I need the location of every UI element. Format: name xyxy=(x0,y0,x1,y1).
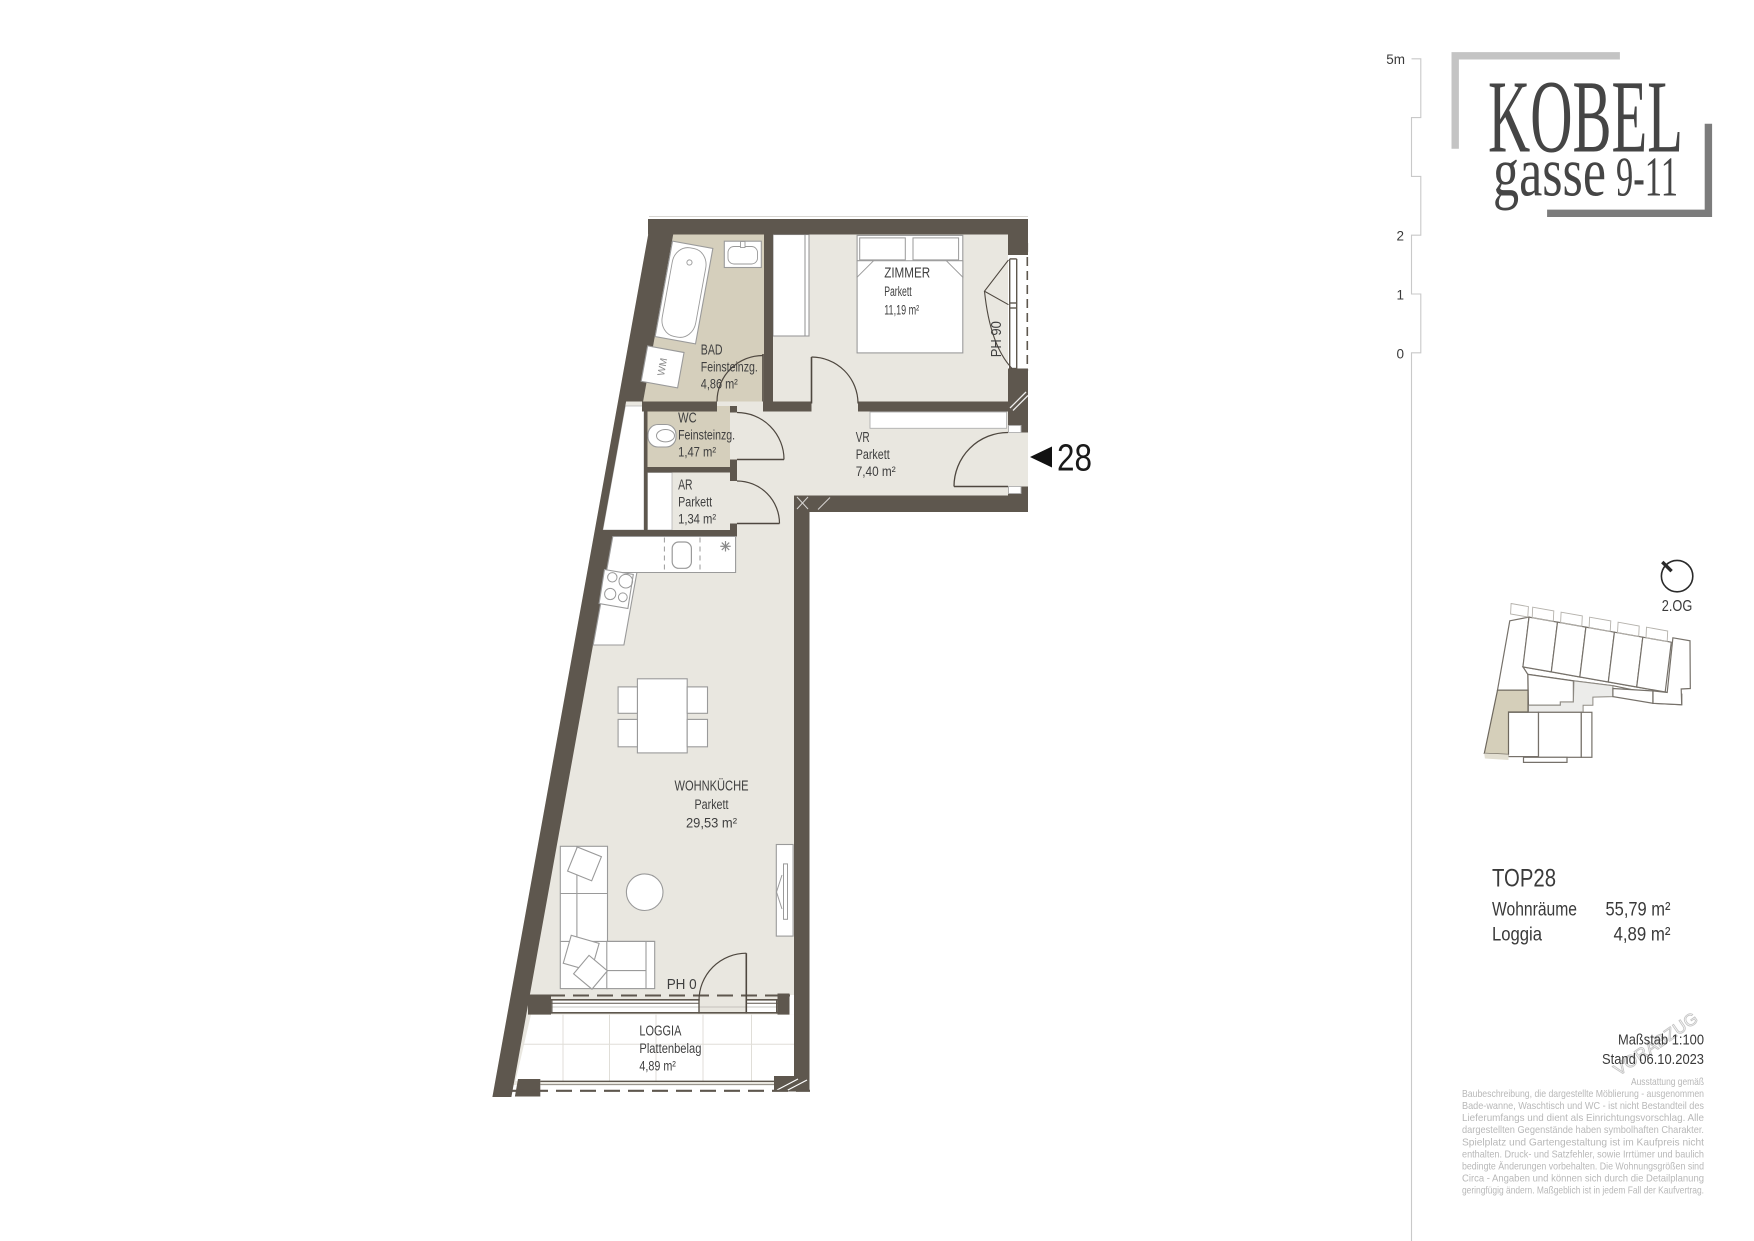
svg-text:Feinsteinzg.: Feinsteinzg. xyxy=(678,428,735,443)
svg-text:0: 0 xyxy=(1396,347,1404,362)
svg-text:Circa - Angaben und können sic: Circa - Angaben und können sich durch di… xyxy=(1462,1174,1704,1185)
svg-text:28: 28 xyxy=(1057,438,1092,480)
svg-text:PH 90: PH 90 xyxy=(988,321,1005,357)
svg-text:11,19 m²: 11,19 m² xyxy=(884,303,919,318)
svg-text:Plattenbelag: Plattenbelag xyxy=(639,1041,701,1056)
svg-text:dargestellten Gegenstände habe: dargestellten Gegenstände haben symbolha… xyxy=(1462,1125,1704,1136)
svg-text:7,40 m²: 7,40 m² xyxy=(856,464,896,479)
svg-text:55,79 m²: 55,79 m² xyxy=(1606,900,1671,921)
svg-text:PH 0: PH 0 xyxy=(667,976,697,993)
svg-text:WOHNKÜCHE: WOHNKÜCHE xyxy=(675,777,749,795)
svg-text:Stand 06.10.2023: Stand 06.10.2023 xyxy=(1602,1051,1704,1068)
svg-text:ZIMMER: ZIMMER xyxy=(884,265,930,282)
svg-text:Feinsteinzg.: Feinsteinzg. xyxy=(701,360,758,375)
svg-text:BAD: BAD xyxy=(701,342,723,359)
svg-text:TOP28: TOP28 xyxy=(1492,865,1556,893)
svg-text:5m: 5m xyxy=(1386,52,1405,67)
svg-text:4,89 m²: 4,89 m² xyxy=(639,1058,676,1073)
svg-text:4,89 m²: 4,89 m² xyxy=(1614,925,1671,946)
svg-text:VR: VR xyxy=(856,429,870,446)
svg-text:Ausstattung gemäß: Ausstattung gemäß xyxy=(1631,1077,1704,1088)
svg-text:Parkett: Parkett xyxy=(695,797,729,812)
svg-text:Loggia: Loggia xyxy=(1492,925,1542,946)
svg-text:Bade-wanne, Waschtisch und WC: Bade-wanne, Waschtisch und WC - ist nich… xyxy=(1462,1101,1704,1112)
svg-text:1: 1 xyxy=(1396,288,1404,303)
svg-text:Parkett: Parkett xyxy=(678,495,712,510)
svg-text:2: 2 xyxy=(1396,229,1404,244)
svg-text:bedingte Änderungen vorbehalte: bedingte Änderungen vorbehalten. Die Woh… xyxy=(1462,1161,1704,1173)
svg-text:WC: WC xyxy=(678,410,697,427)
svg-text:gasse: gasse xyxy=(1493,135,1606,212)
svg-text:4,86 m²: 4,86 m² xyxy=(701,377,738,392)
svg-text:1,34 m²: 1,34 m² xyxy=(678,512,716,527)
svg-text:2.OG: 2.OG xyxy=(1662,598,1693,615)
svg-text:AR: AR xyxy=(678,477,693,494)
svg-text:LOGGIA: LOGGIA xyxy=(639,1022,681,1039)
svg-text:Wohnräume: Wohnräume xyxy=(1492,900,1577,921)
svg-text:Spielplatz und Gartengestaltun: Spielplatz und Gartengestaltung ist im K… xyxy=(1462,1137,1704,1148)
svg-text:Baubeschreibung, die dargestel: Baubeschreibung, die dargestellte Möblie… xyxy=(1462,1089,1704,1100)
svg-text:geringfügig ändern. Maßgeblich: geringfügig ändern. Maßgeblich ist in je… xyxy=(1462,1186,1704,1197)
svg-text:Parkett: Parkett xyxy=(884,284,912,299)
svg-text:Parkett: Parkett xyxy=(856,447,890,462)
svg-text:29,53 m²: 29,53 m² xyxy=(686,815,737,830)
svg-text:1,47 m²: 1,47 m² xyxy=(678,445,716,460)
svg-text:Maßstab 1:100: Maßstab 1:100 xyxy=(1618,1032,1704,1049)
svg-text:enthalten. Druck- und Satzfehl: enthalten. Druck- und Satzfehler, sowie … xyxy=(1462,1149,1704,1160)
svg-text:Lieferumfangs und dient als Ei: Lieferumfangs und dient als Einrichtungs… xyxy=(1462,1113,1704,1124)
svg-text:9-11: 9-11 xyxy=(1616,147,1678,209)
